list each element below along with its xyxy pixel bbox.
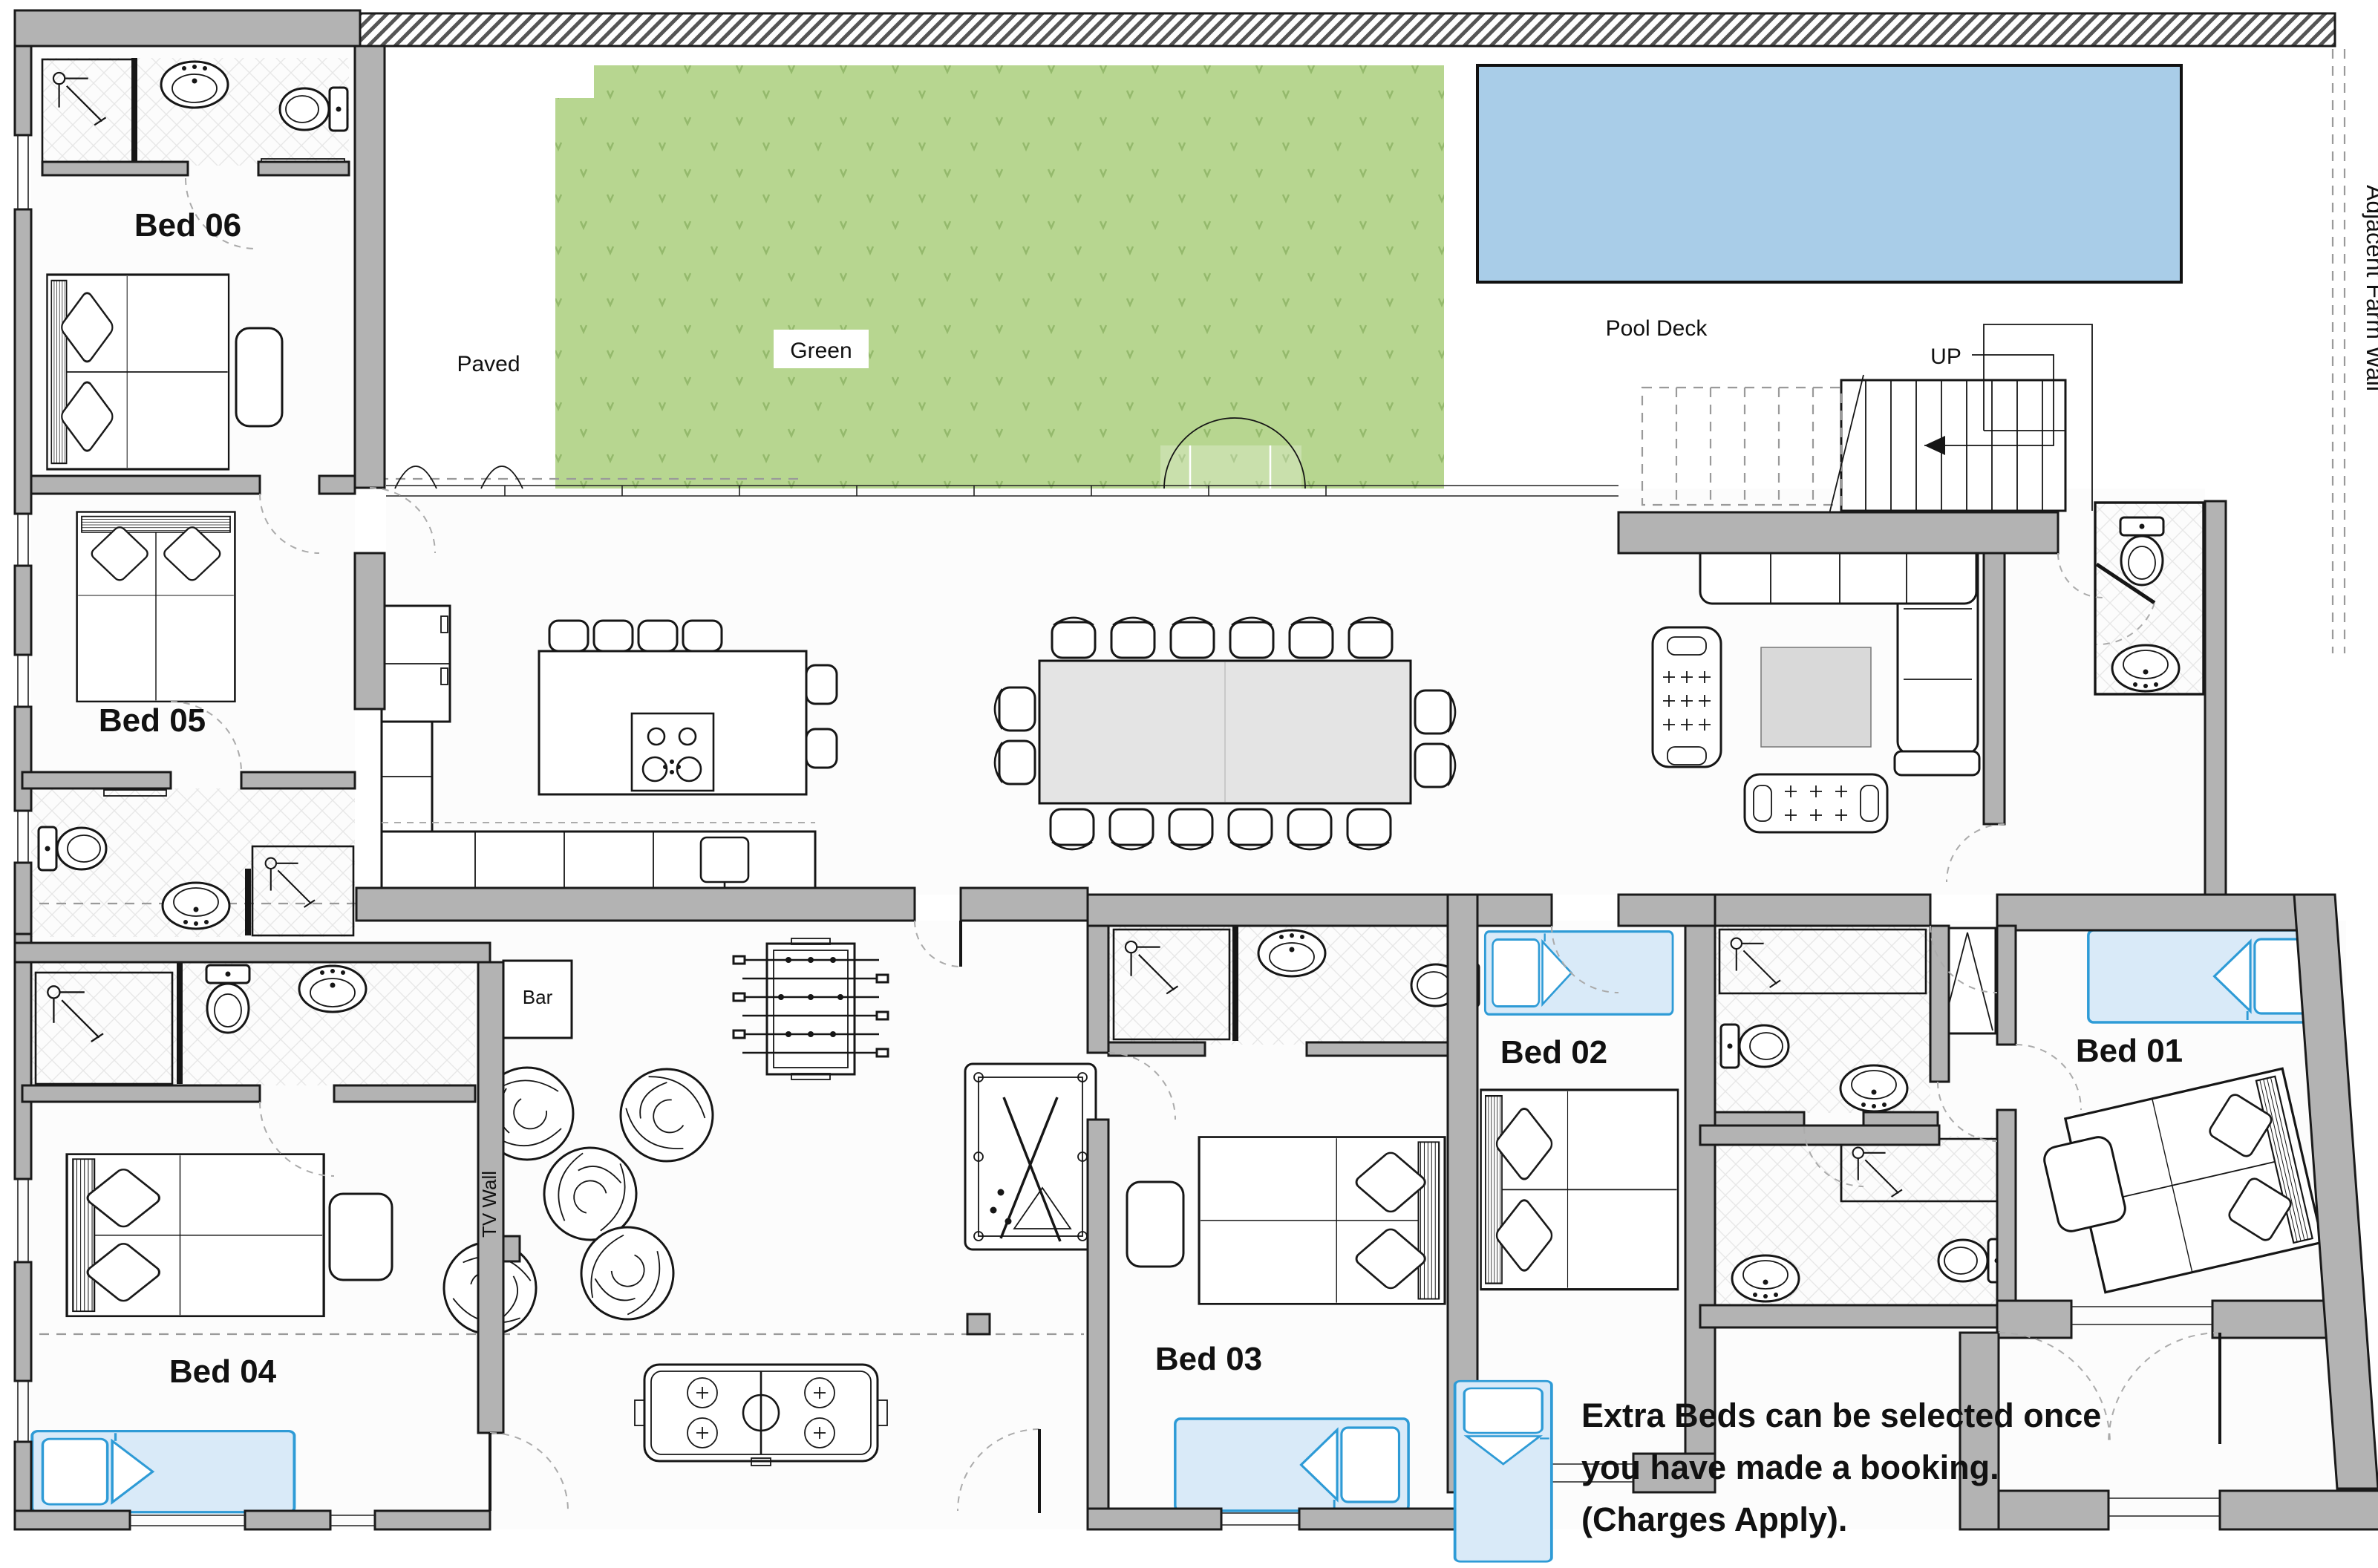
stairs bbox=[1642, 324, 2092, 520]
kitchen-island bbox=[539, 651, 806, 794]
sink bbox=[161, 62, 228, 108]
room-label-bed01: Bed 01 bbox=[2076, 1033, 2183, 1069]
bed-03-double-bed bbox=[1199, 1137, 1445, 1304]
area-label-paved: Paved bbox=[457, 352, 520, 376]
room-label-bed04: Bed 04 bbox=[169, 1353, 277, 1390]
extra-bed-bed04 bbox=[32, 1431, 294, 1512]
bar-label: Bar bbox=[523, 986, 553, 1008]
extra-bed-bed02 bbox=[1485, 932, 1673, 1015]
farm-wall-label: Adjacent Farm Wall bbox=[2362, 185, 2378, 391]
bed-02-double-bed bbox=[1481, 1090, 1678, 1290]
bed-05-double-bed bbox=[77, 512, 235, 702]
tv-wall-label: TV Wall bbox=[478, 1171, 500, 1238]
bed-06-double-bed bbox=[47, 275, 229, 469]
boundary-wall-hatched bbox=[360, 13, 2335, 46]
sink bbox=[163, 883, 229, 929]
extra-bed-legend-icon bbox=[1455, 1381, 1552, 1561]
toilet bbox=[1721, 1025, 1789, 1068]
green-lawn-grass bbox=[555, 65, 1444, 489]
area-label-pool-deck: Pool Deck bbox=[1606, 316, 1708, 341]
coffee-table bbox=[1761, 647, 1871, 747]
bedside-table bbox=[1127, 1182, 1183, 1267]
sink bbox=[1732, 1255, 1799, 1301]
note-line-3: (Charges Apply). bbox=[1581, 1500, 1847, 1538]
green-gate bbox=[1160, 445, 1301, 489]
room-label-bed02: Bed 02 bbox=[1500, 1034, 1607, 1071]
column bbox=[967, 1314, 990, 1334]
toilet bbox=[1938, 1239, 2006, 1282]
sink bbox=[1840, 1065, 1907, 1111]
swimming-pool bbox=[1477, 65, 2181, 282]
area-label-green: Green bbox=[790, 339, 852, 363]
ottoman-vertical bbox=[1653, 627, 1721, 767]
toilet bbox=[39, 827, 106, 870]
sink bbox=[299, 966, 366, 1012]
sink bbox=[1258, 930, 1325, 976]
note-line-1: Extra Beds can be selected once bbox=[1581, 1396, 2101, 1434]
room-label-bed05: Bed 05 bbox=[99, 702, 206, 739]
bedside-table bbox=[236, 328, 282, 426]
extra-bed-bed01 bbox=[2088, 930, 2322, 1022]
room-label-bed03: Bed 03 bbox=[1155, 1341, 1262, 1377]
room-label-bed06: Bed 06 bbox=[134, 207, 241, 244]
stairs-label-up: UP bbox=[1930, 344, 1961, 369]
bedside-table bbox=[330, 1194, 392, 1280]
pool-table bbox=[965, 1064, 1096, 1249]
toilet bbox=[206, 965, 249, 1033]
ottoman-horizontal bbox=[1745, 774, 1887, 832]
air-hockey-table bbox=[635, 1365, 887, 1466]
toilet bbox=[2120, 517, 2163, 585]
note-line-2: you have made a booking. bbox=[1581, 1448, 1999, 1486]
toilet bbox=[280, 88, 347, 131]
extra-bed-bed03 bbox=[1175, 1419, 1408, 1511]
sink bbox=[2112, 645, 2179, 691]
kitchen-counter-bottom bbox=[382, 832, 815, 888]
farm-wall-boundary bbox=[2333, 49, 2345, 653]
bed-04-double-bed bbox=[67, 1154, 324, 1316]
floor-plan: Bed 06 Bed 05 Bed 04 Bed 03 Bed 02 Bed 0… bbox=[0, 0, 2378, 1568]
